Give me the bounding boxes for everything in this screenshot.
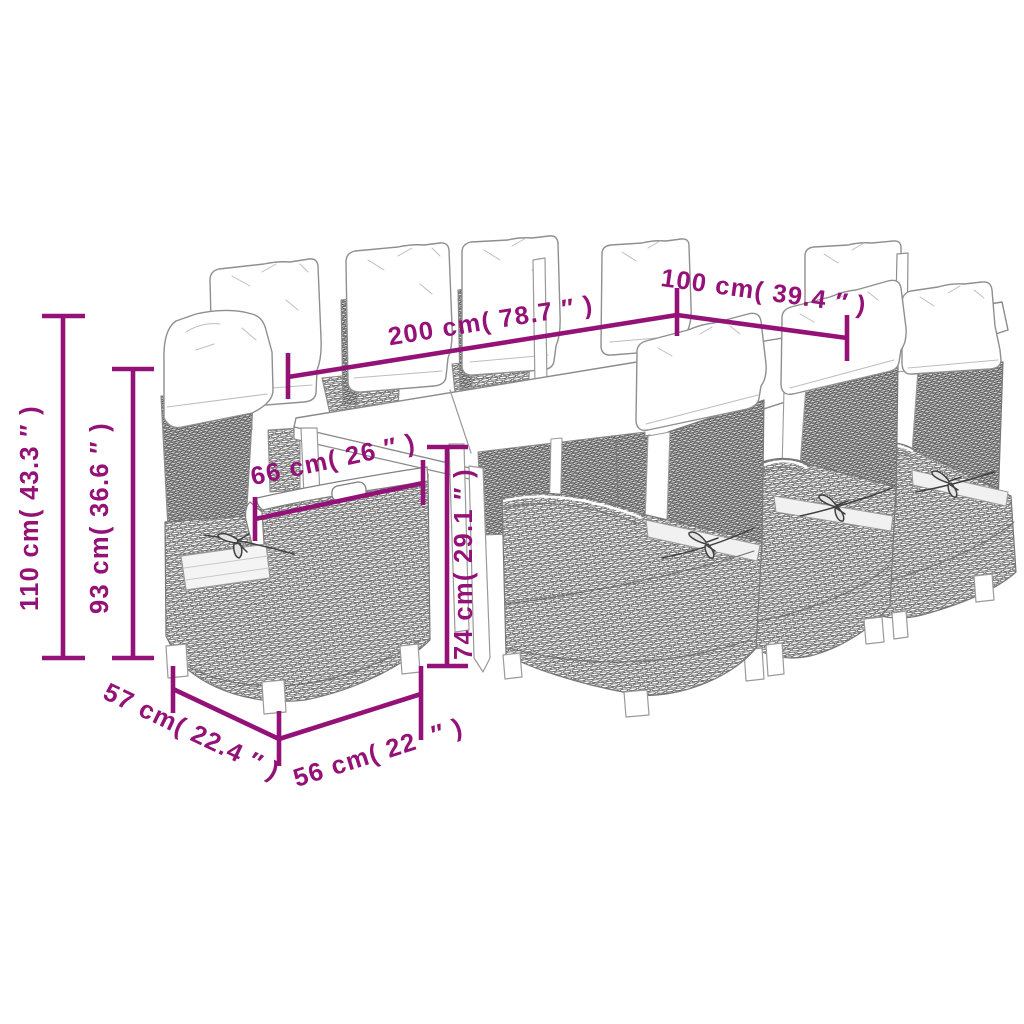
svg-text:110 cm( 43.3 ″ ): 110 cm( 43.3 ″ ) [16,405,44,611]
svg-text:74 cm( 29.1 ″ ): 74 cm( 29.1 ″ ) [450,468,478,660]
svg-text:93 cm( 36.6 ″ ): 93 cm( 36.6 ″ ) [86,422,114,614]
